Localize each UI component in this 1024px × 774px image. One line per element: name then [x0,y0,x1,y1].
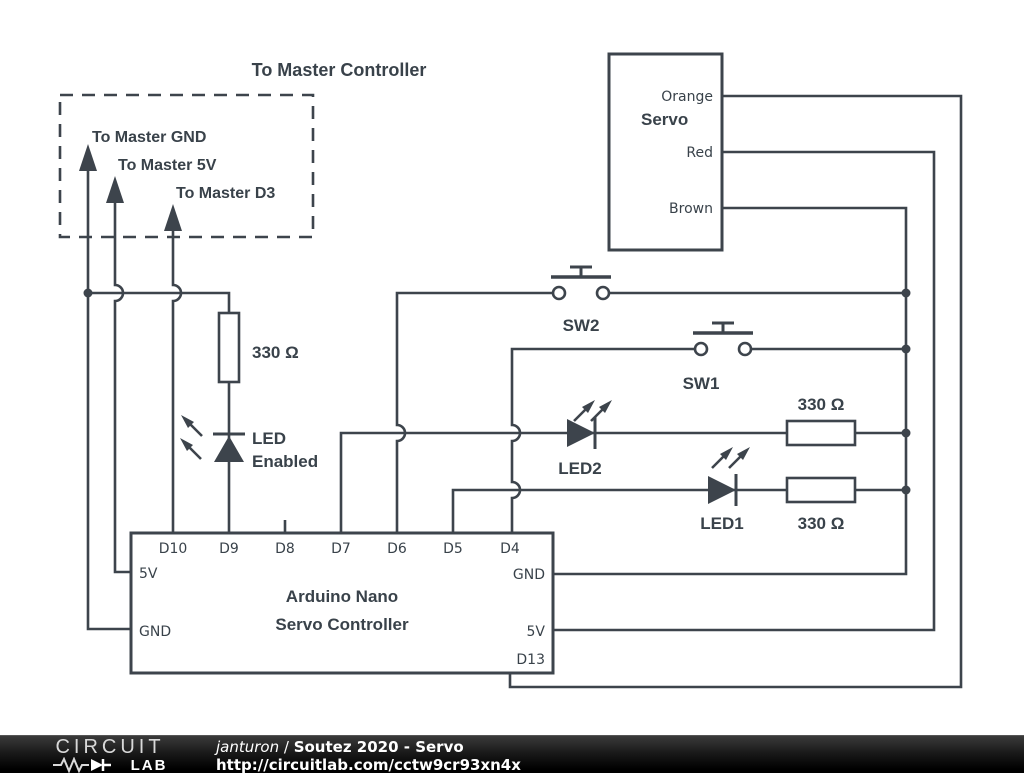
resistor-led-enabled-label: 330 Ω [252,343,299,362]
led-enabled: LED Enabled [180,415,318,471]
led2-emission-icon [591,400,612,421]
resistor-led1-label: 330 Ω [798,514,845,533]
resistor-led2 [787,421,855,445]
pin-label-gnd-left: GND [139,624,171,640]
author-name: janturon [216,738,279,756]
wire-d4-sw1 [512,349,695,533]
led1-label: LED1 [700,514,743,533]
master-title: To Master Controller [252,60,427,80]
servo-pin-red: Red [686,145,713,161]
circuit-schematic: To Master Controller To Master GND To Ma… [0,0,1024,730]
sw1-pushbutton: SW1 [683,323,753,393]
project-title: Soutez 2020 - Servo [294,738,464,756]
pin-label-5v-right: 5V [527,624,546,640]
sw2-terminal-right [597,287,609,299]
resistor-led2-label: 330 Ω [798,395,845,414]
circuitlab-logo-bottom: LAB [131,758,168,773]
led2: LED2 [558,400,612,478]
sw1-terminal-left [695,343,707,355]
led1-emission-icon [712,447,733,468]
master-gnd-label: To Master GND [92,129,206,146]
wire-d6-sw2 [397,293,553,533]
resistor-led-enabled [219,313,239,382]
arrow-master-gnd-icon [79,144,97,171]
servo-pin-brown: Brown [669,201,713,217]
led-enabled-emission-icon [181,415,202,436]
pin-label-d6: D6 [387,541,407,557]
resistor-diode-icon [53,757,129,773]
arrow-master-d3-icon [164,204,182,231]
arduino-box: D10 D9 D8 D7 D6 D5 D4 5V GND GND 5V D13 … [131,533,553,673]
led-enabled-diode-icon [214,436,244,462]
pin-label-d4: D4 [500,541,520,557]
sw1-label: SW1 [683,374,720,393]
led2-diode-icon [567,419,595,447]
resistor-led1 [787,478,855,502]
led1-emission-icon [729,447,750,468]
pin-label-5v-left: 5V [139,566,158,582]
pin-label-d8: D8 [275,541,295,557]
arrow-master-5v-icon [106,176,124,203]
circuitlab-logo-top: CIRCUIT [45,737,175,757]
sw2-label: SW2 [563,316,600,335]
wire-master-d3-to-d10 [173,228,181,533]
pin-label-d7: D7 [331,541,351,557]
arduino-title-line1: Arduino Nano [286,587,398,606]
servo-label: Servo [641,110,688,129]
led2-label: LED2 [558,459,601,478]
pin-label-d5: D5 [443,541,463,557]
pin-label-d9: D9 [219,541,239,557]
wire-master-5v [115,200,131,572]
sw2-terminal-left [553,287,565,299]
pin-label-gnd-right: GND [513,567,545,583]
master-d3-label: To Master D3 [176,185,275,202]
author-separator: / [279,738,294,756]
led-enabled-emission-icon [180,438,201,459]
junction-dots [84,289,911,495]
wire-servo-orange-d13 [510,96,961,687]
arduino-title-line2: Servo Controller [275,615,409,634]
footer-bar: CIRCUIT LAB janturon / Soutez 2020 - Ser… [0,735,1024,773]
led-enabled-label-line1: LED [252,429,286,448]
master-5v-label: To Master 5V [118,157,217,174]
led-enabled-label-line2: Enabled [252,452,318,471]
attribution: janturon / Soutez 2020 - Servo http://ci… [216,738,521,774]
servo-pin-orange: Orange [661,89,713,105]
led2-emission-icon [574,400,595,421]
sw1-terminal-right [739,343,751,355]
led1-diode-icon [708,476,736,504]
wire-led-enabled-branch [88,293,229,533]
pin-label-d10: D10 [159,541,188,557]
pin-label-d13: D13 [516,652,545,668]
schematic-url: http://circuitlab.com/cctw9cr93xn4x [216,756,521,774]
sw2-pushbutton: SW2 [551,267,611,335]
